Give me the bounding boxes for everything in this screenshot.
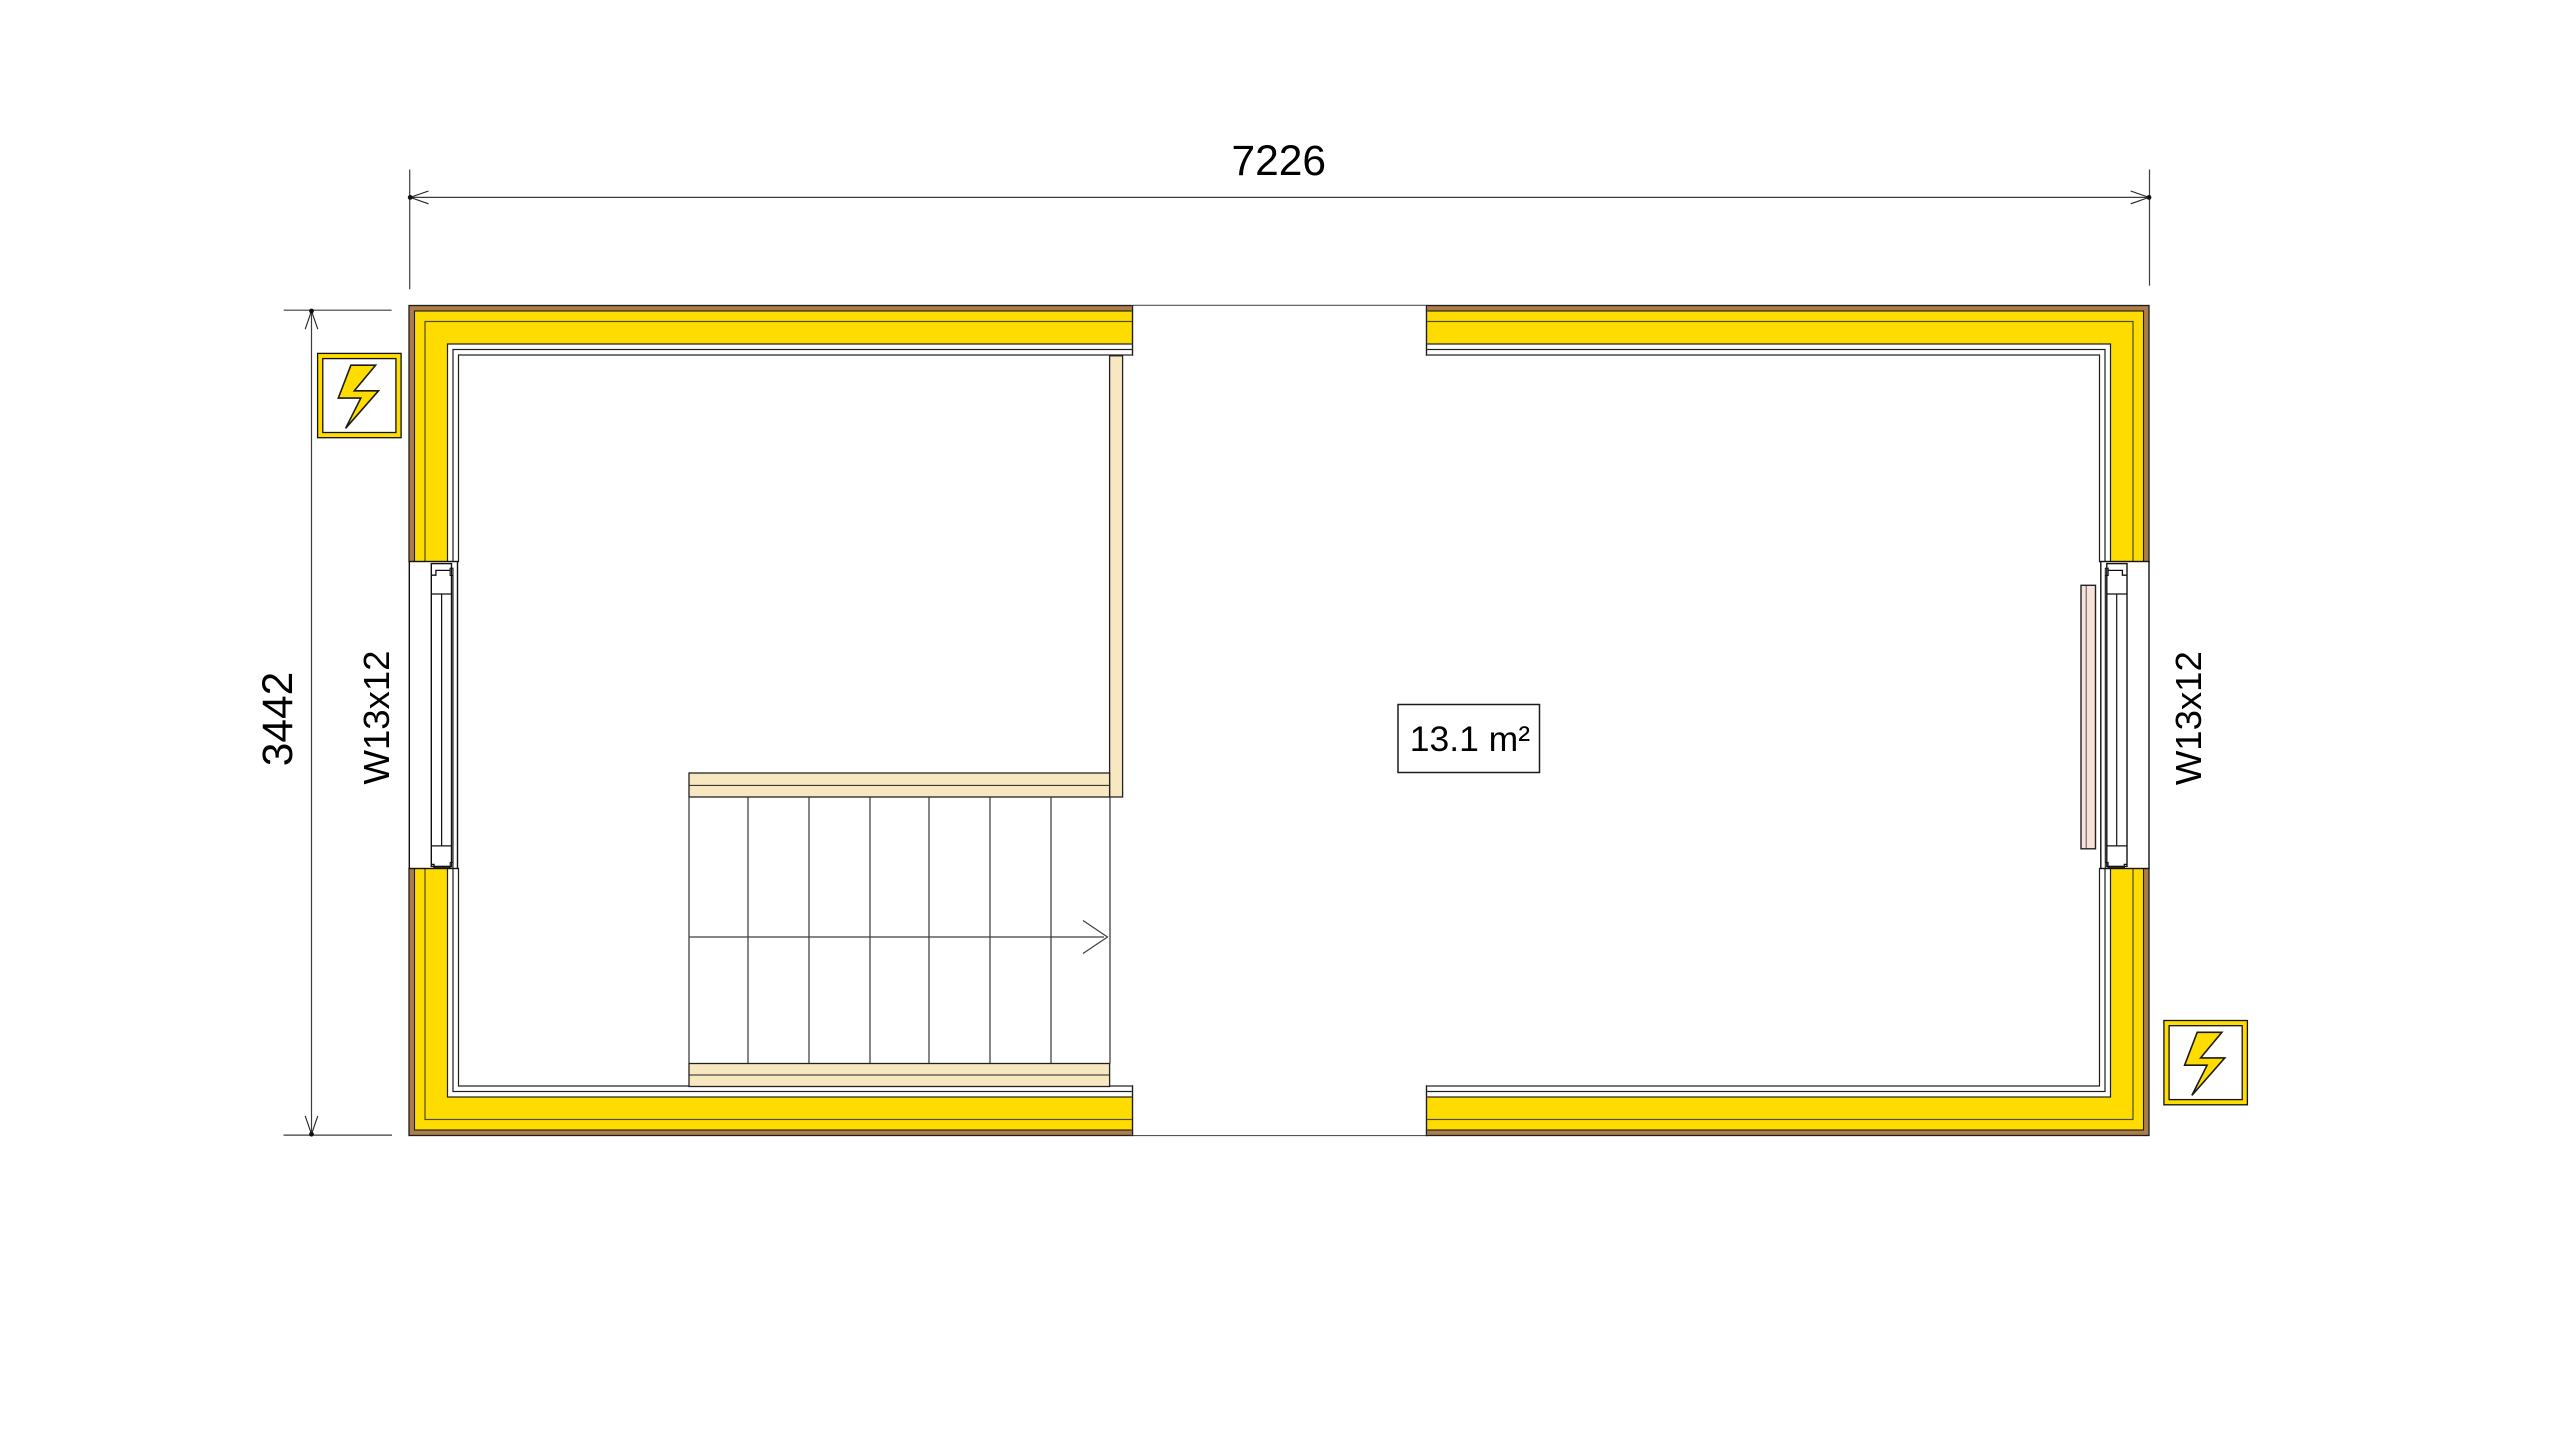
svg-text:W13x12: W13x12 [356, 651, 397, 785]
svg-text:W13x12: W13x12 [2168, 651, 2209, 785]
svg-text:3442: 3442 [255, 672, 302, 767]
svg-text:7226: 7226 [1232, 138, 1327, 185]
svg-text:13.1 m²: 13.1 m² [1410, 719, 1531, 759]
